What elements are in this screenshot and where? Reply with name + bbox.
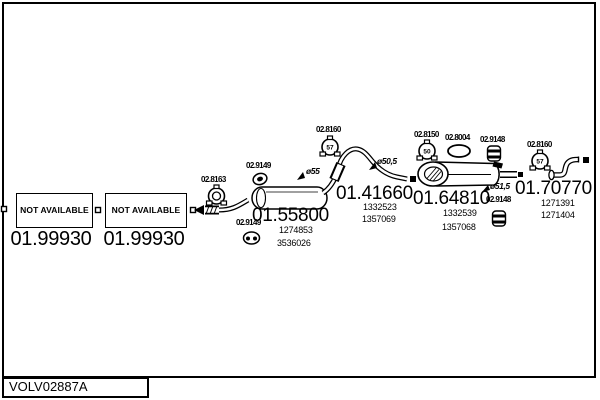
not-available-box-2: NOT AVAILABLE <box>105 193 187 228</box>
not-available-label: NOT AVAILABLE <box>20 205 89 217</box>
oem-number: 3536026 <box>277 239 311 248</box>
oem-number: 1271391 <box>541 199 575 208</box>
oval-gasket-icon <box>448 145 470 157</box>
clamp-size-label: 50 <box>423 149 431 156</box>
connector-square <box>583 157 589 163</box>
connector-square <box>96 208 101 213</box>
flow-arrow-icon <box>194 205 204 215</box>
drawing-code-box: VOLV02887A <box>2 377 149 398</box>
connector-square <box>2 207 7 212</box>
part-number-99930-1[interactable]: 01.99930 <box>6 229 96 249</box>
clamp-size-label: 57 <box>326 145 334 152</box>
fitting-label-8160-a: 02.8160 <box>316 126 341 134</box>
connector-square <box>410 176 416 182</box>
fitting-label-8004: 02.8004 <box>445 134 470 142</box>
oem-number: 1271404 <box>541 211 575 220</box>
clamp-icon: 57 <box>320 136 340 156</box>
rubber-grommet-icon <box>244 232 260 244</box>
part-number-55800[interactable]: 01.55800 <box>252 206 329 225</box>
oem-number: 1357069 <box>362 215 396 224</box>
part-number-99930-2[interactable]: 01.99930 <box>99 229 189 249</box>
drawing-code: VOLV02887A <box>9 379 88 394</box>
fitting-label-9149-b: 02.9149 <box>236 219 261 227</box>
part-number-64810[interactable]: 01.64810 <box>413 189 490 208</box>
fitting-label-9148-a: 02.9148 <box>480 136 505 144</box>
clamp-icon: 50 <box>417 140 437 160</box>
oem-number: 1332539 <box>443 209 477 218</box>
fitting-label-9148-b: 02.9148 <box>486 196 511 204</box>
exhaust-diagram-page: 57 50 57 <box>0 0 600 400</box>
diameter-label-50-5: ø50,5 <box>377 157 397 166</box>
diameter-label-55: ø55 <box>306 167 319 176</box>
connector-square <box>518 172 523 177</box>
leader-arrow-icon <box>297 172 305 180</box>
clamp-size-label: 57 <box>536 159 544 166</box>
oem-number: 1274853 <box>279 226 313 235</box>
oem-number: 1332523 <box>363 203 397 212</box>
clamp-icon: 57 <box>530 150 550 170</box>
clamp-ring-icon <box>207 185 227 205</box>
fitting-label-9149-a: 02.9149 <box>246 162 271 170</box>
not-available-box-1: NOT AVAILABLE <box>16 193 93 228</box>
part-number-41660[interactable]: 01.41660 <box>336 184 413 203</box>
rubber-hanger-icon <box>493 211 506 226</box>
fitting-label-8160-b: 02.8160 <box>527 141 552 149</box>
fitting-label-8163: 02.8163 <box>201 176 226 184</box>
rubber-hanger-icon <box>488 146 501 161</box>
tail-pipe-drawing <box>549 157 589 180</box>
fitting-label-8150: 02.8150 <box>414 131 439 139</box>
part-number-70770[interactable]: 01.70770 <box>515 179 592 198</box>
oem-number: 1357068 <box>442 223 476 232</box>
rubber-grommet-icon <box>252 172 269 187</box>
not-available-label: NOT AVAILABLE <box>112 205 181 217</box>
diameter-label-51-5: ø51,5 <box>490 182 510 191</box>
